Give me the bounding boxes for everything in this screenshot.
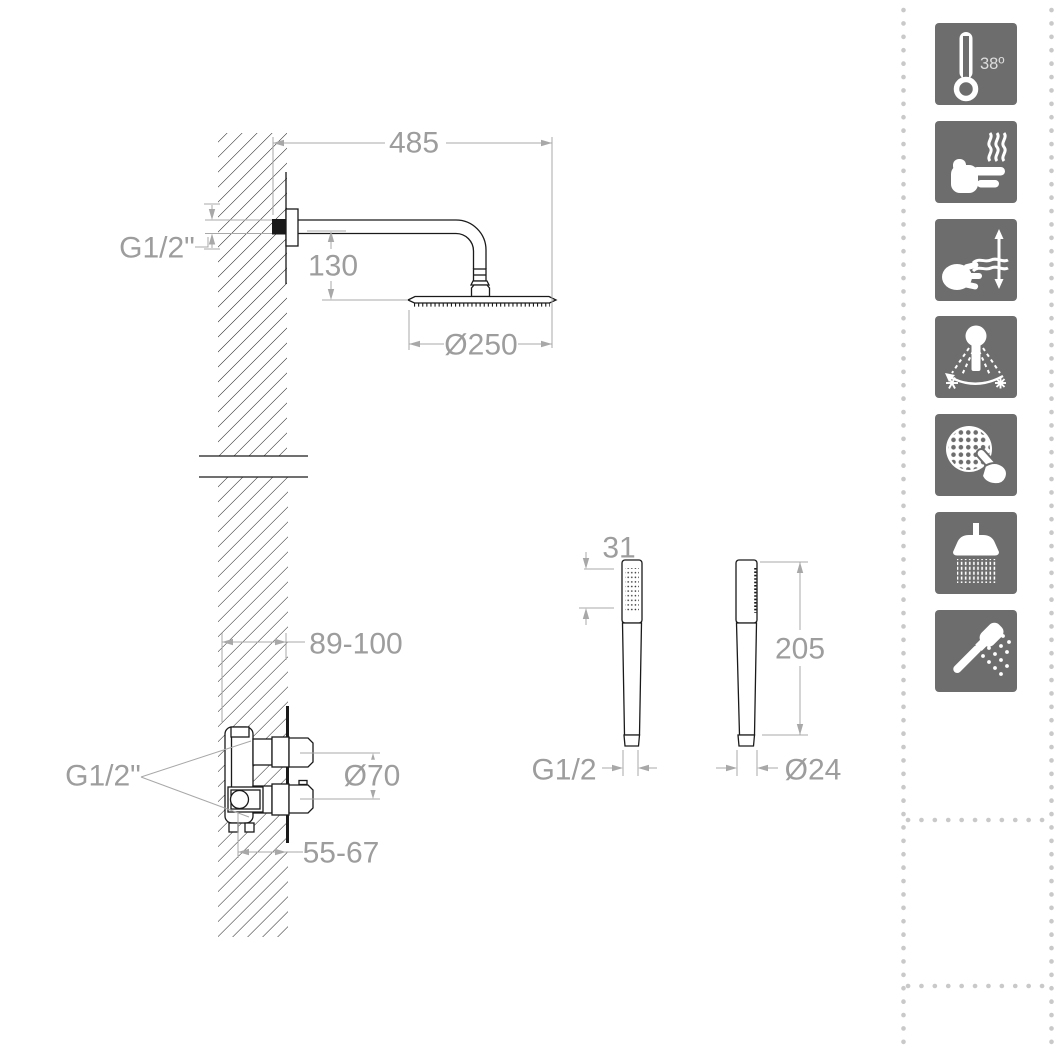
rain-head-plate [408,297,556,304]
flow-updown-icon [935,219,1017,301]
wall-elbow-connector [272,219,286,235]
hot-surface-safe-icon [935,121,1017,203]
dim-trim-diameter: Ø70 [344,760,401,793]
thermostat-38-icon: 38º [935,23,1017,105]
hot-sun-icon [995,378,1006,389]
dim-valve-thread: G1/2" [65,760,141,793]
technical-drawing: 485 G1/2" 130 Ø250 89-100 G1/2" Ø70 55-6… [0,0,1059,1059]
dim-rough-in-depth: 89-100 [309,628,402,661]
spray-face-dots [625,568,639,612]
rain-drops-icon [957,559,997,583]
shower-arm-assembly [272,172,556,305]
hand-shower-views [622,560,757,746]
dim-head-offset: 130 [308,250,358,283]
arm-escutcheon [286,209,298,246]
easy-clean-nozzles-icon [935,414,1017,496]
spray-rotation-icon [935,316,1017,398]
dim-handshower-face: 31 [602,532,635,565]
temperature-badge: 38º [980,55,1004,73]
dim-valve-depth: 55-67 [303,837,380,870]
dim-arm-length: 485 [389,127,439,160]
rain-shower-icon [935,512,1017,594]
dim-handshower-diameter: Ø24 [785,754,842,787]
dim-handshower-thread: G1/2 [531,754,596,787]
dim-arm-thread: G1/2" [119,232,195,265]
dim-handshower-length: 205 [775,633,825,666]
product-technical-sheet: 485 G1/2" 130 Ø250 89-100 G1/2" Ø70 55-6… [0,0,1059,1059]
hand-shower-icon [935,610,1017,692]
dim-head-diameter: Ø250 [444,329,517,362]
